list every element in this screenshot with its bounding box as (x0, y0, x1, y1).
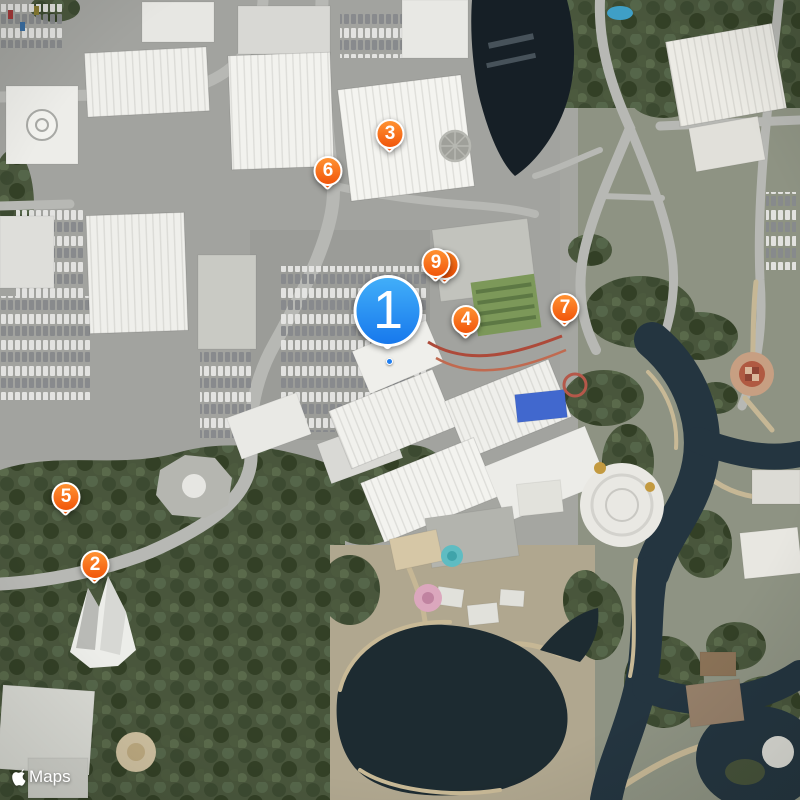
apple-logo-icon (12, 769, 26, 786)
pin-number: 7 (560, 298, 571, 317)
pin-number: 9 (431, 253, 442, 272)
pin-head: 7 (551, 293, 580, 323)
pin-number: 4 (461, 310, 472, 329)
pin-head: 2 (81, 550, 110, 580)
pin-number: 1 (373, 283, 403, 337)
pin-head: 9 (422, 248, 451, 278)
location-dot (386, 358, 393, 365)
pin-head: 1 (354, 275, 423, 347)
attribution-label: Maps (29, 767, 71, 787)
maps-app: 9 2 3 4 5 6 7 (0, 0, 800, 800)
maps-attribution: Maps (12, 767, 71, 787)
satellite-imagery (0, 0, 800, 800)
map-canvas[interactable] (0, 0, 800, 800)
pin-number: 5 (61, 487, 72, 506)
pin-number: 6 (323, 161, 334, 180)
pin-head: 5 (52, 482, 81, 512)
pin-number: 2 (90, 555, 101, 574)
pin-head: 6 (314, 156, 343, 186)
pin-number: 3 (385, 124, 396, 143)
pin-head: 3 (376, 119, 405, 149)
pin-head: 4 (452, 305, 481, 335)
